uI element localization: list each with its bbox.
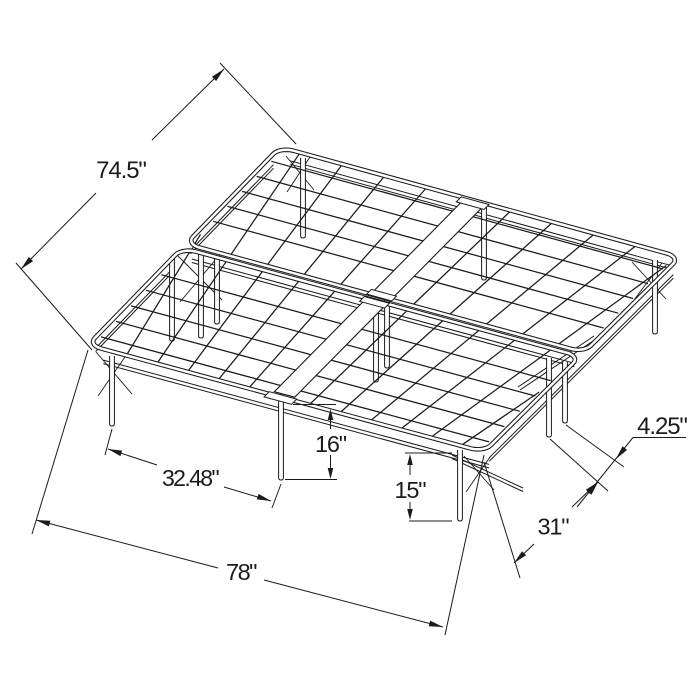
svg-text:32.48": 32.48" xyxy=(162,465,220,491)
svg-text:16": 16" xyxy=(315,431,347,457)
svg-text:15": 15" xyxy=(395,477,427,503)
svg-text:4.25": 4.25" xyxy=(637,413,687,440)
svg-text:31": 31" xyxy=(538,514,570,540)
svg-text:78": 78" xyxy=(226,559,257,585)
svg-text:74.5": 74.5" xyxy=(96,157,146,184)
